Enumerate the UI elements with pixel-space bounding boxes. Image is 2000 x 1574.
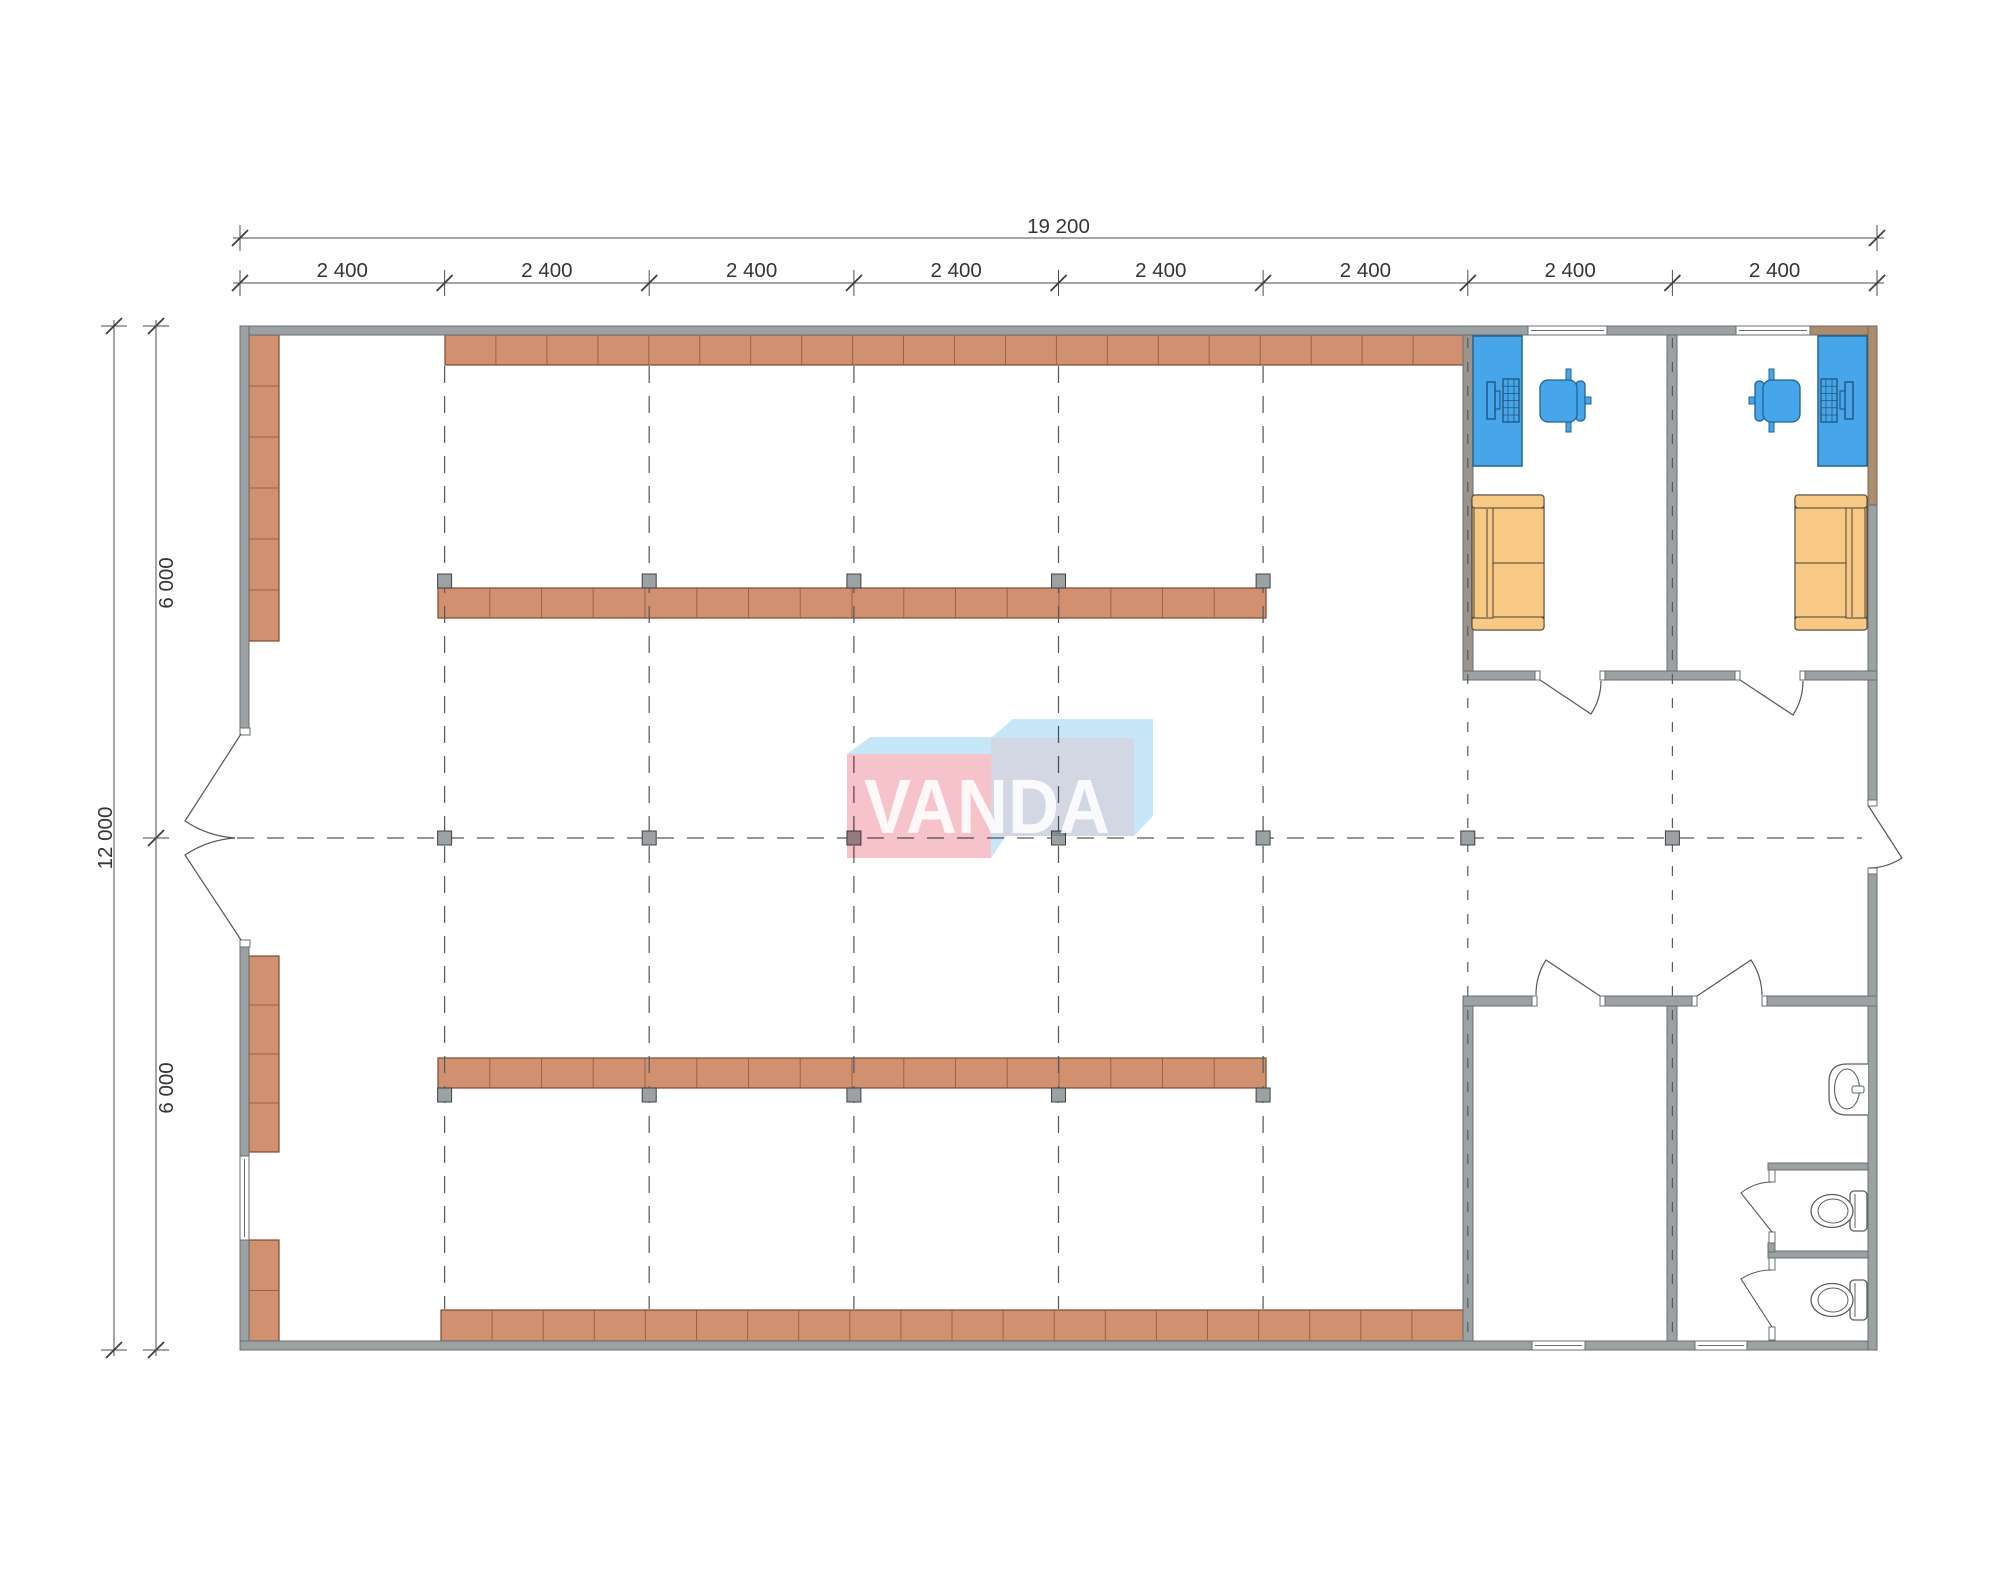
svg-text:2 400: 2 400 [1544, 259, 1595, 282]
svg-text:2 400: 2 400 [1135, 259, 1186, 282]
svg-text:2 400: 2 400 [931, 259, 982, 282]
svg-text:2 400: 2 400 [521, 259, 572, 282]
svg-text:2 400: 2 400 [317, 259, 368, 282]
svg-text:6 000: 6 000 [155, 557, 178, 608]
svg-text:2 400: 2 400 [1340, 259, 1391, 282]
svg-text:2 400: 2 400 [1749, 259, 1800, 282]
svg-text:2 400: 2 400 [726, 259, 777, 282]
svg-text:12 000: 12 000 [94, 807, 117, 870]
svg-text:VANDA: VANDA [864, 764, 1110, 850]
svg-text:19 200: 19 200 [1027, 215, 1090, 238]
svg-text:6 000: 6 000 [155, 1062, 178, 1113]
